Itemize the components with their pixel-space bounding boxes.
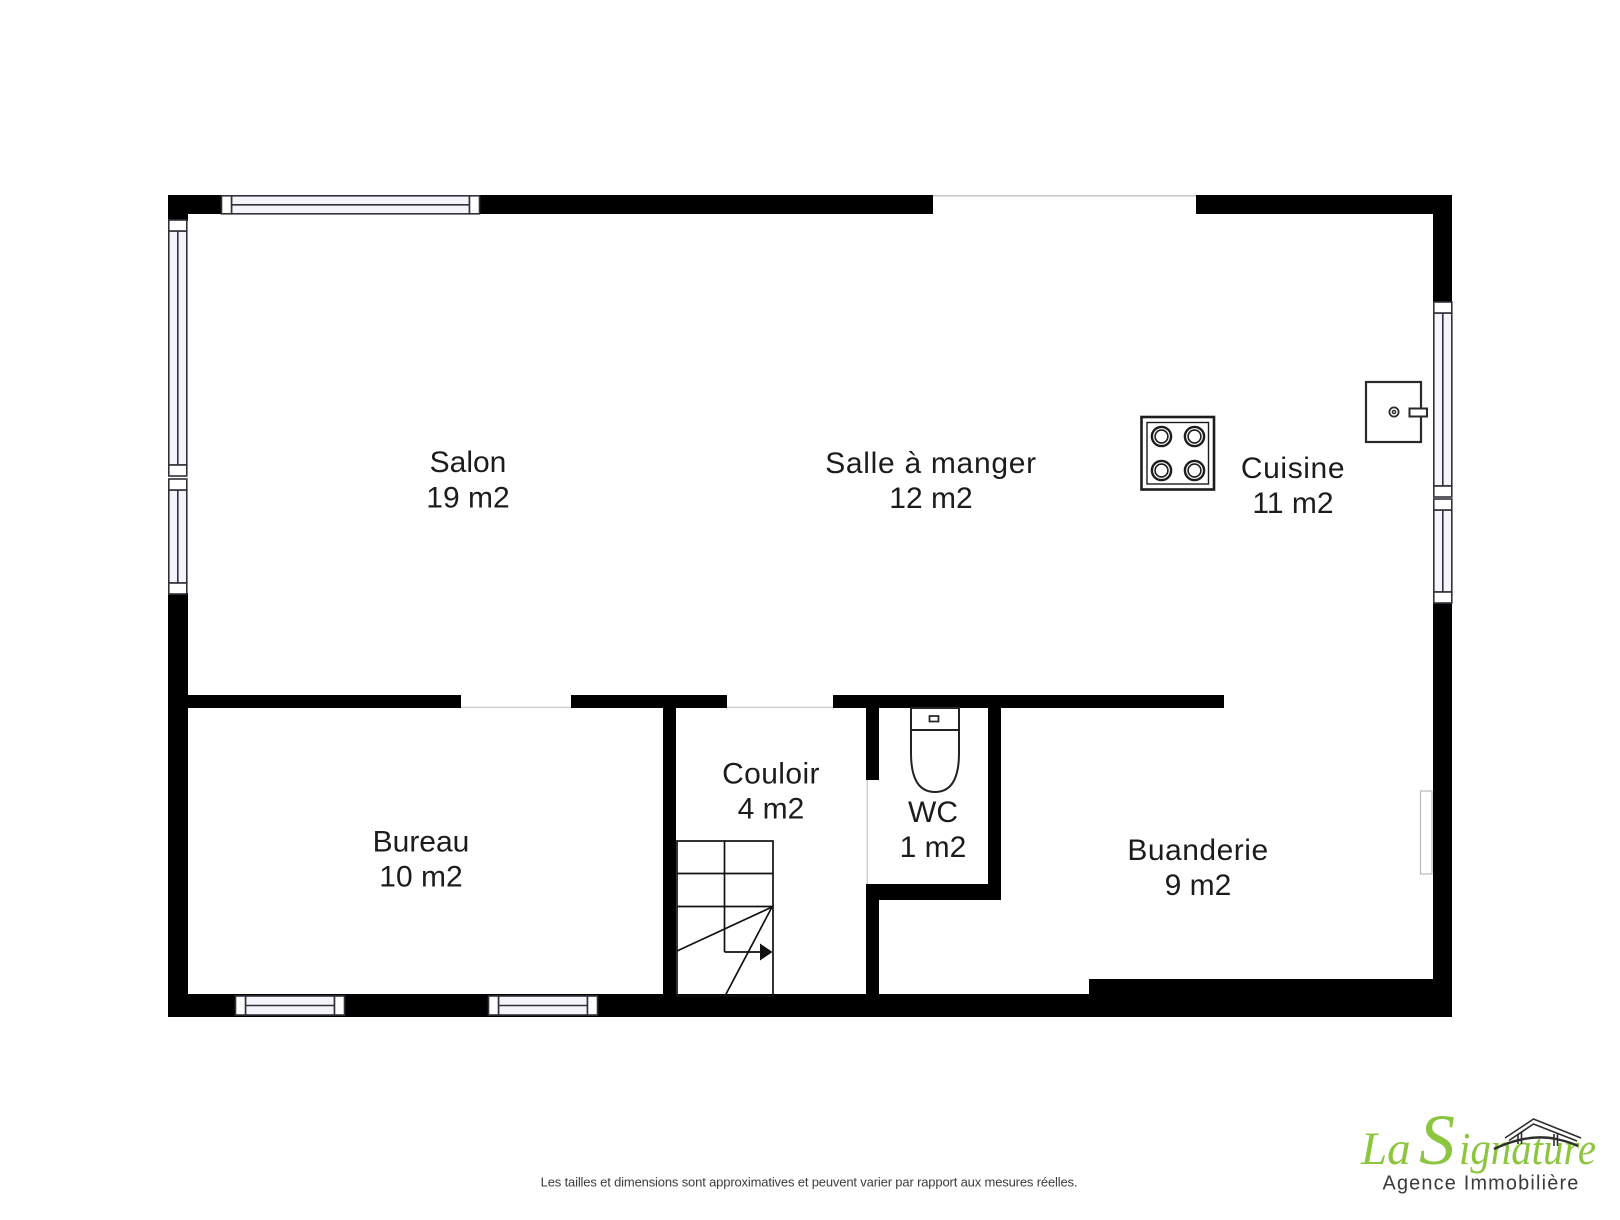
- svg-text:10 m2: 10 m2: [379, 861, 462, 894]
- svg-text:Salon: Salon: [430, 446, 507, 479]
- svg-text:Salle à manger: Salle à manger: [825, 447, 1037, 480]
- svg-text:Buanderie: Buanderie: [1127, 834, 1268, 867]
- svg-text:Les tailles et dimensions sont: Les tailles et dimensions sont approxima…: [541, 1175, 1078, 1190]
- svg-text:1 m2: 1 m2: [900, 831, 967, 864]
- svg-text:4 m2: 4 m2: [738, 793, 805, 826]
- svg-text:S: S: [1419, 1100, 1455, 1180]
- svg-text:11 m2: 11 m2: [1252, 487, 1333, 520]
- svg-text:Bureau: Bureau: [373, 826, 470, 859]
- svg-text:Agence Immobilière: Agence Immobilière: [1383, 1173, 1580, 1195]
- svg-text:9 m2: 9 m2: [1165, 869, 1232, 902]
- svg-text:19 m2: 19 m2: [426, 482, 509, 515]
- svg-text:12 m2: 12 m2: [889, 482, 972, 515]
- svg-text:ignature: ignature: [1459, 1123, 1596, 1174]
- svg-text:WC: WC: [908, 796, 958, 829]
- svg-text:Cuisine: Cuisine: [1241, 452, 1345, 485]
- svg-text:La: La: [1360, 1123, 1411, 1175]
- svg-text:Couloir: Couloir: [722, 758, 820, 791]
